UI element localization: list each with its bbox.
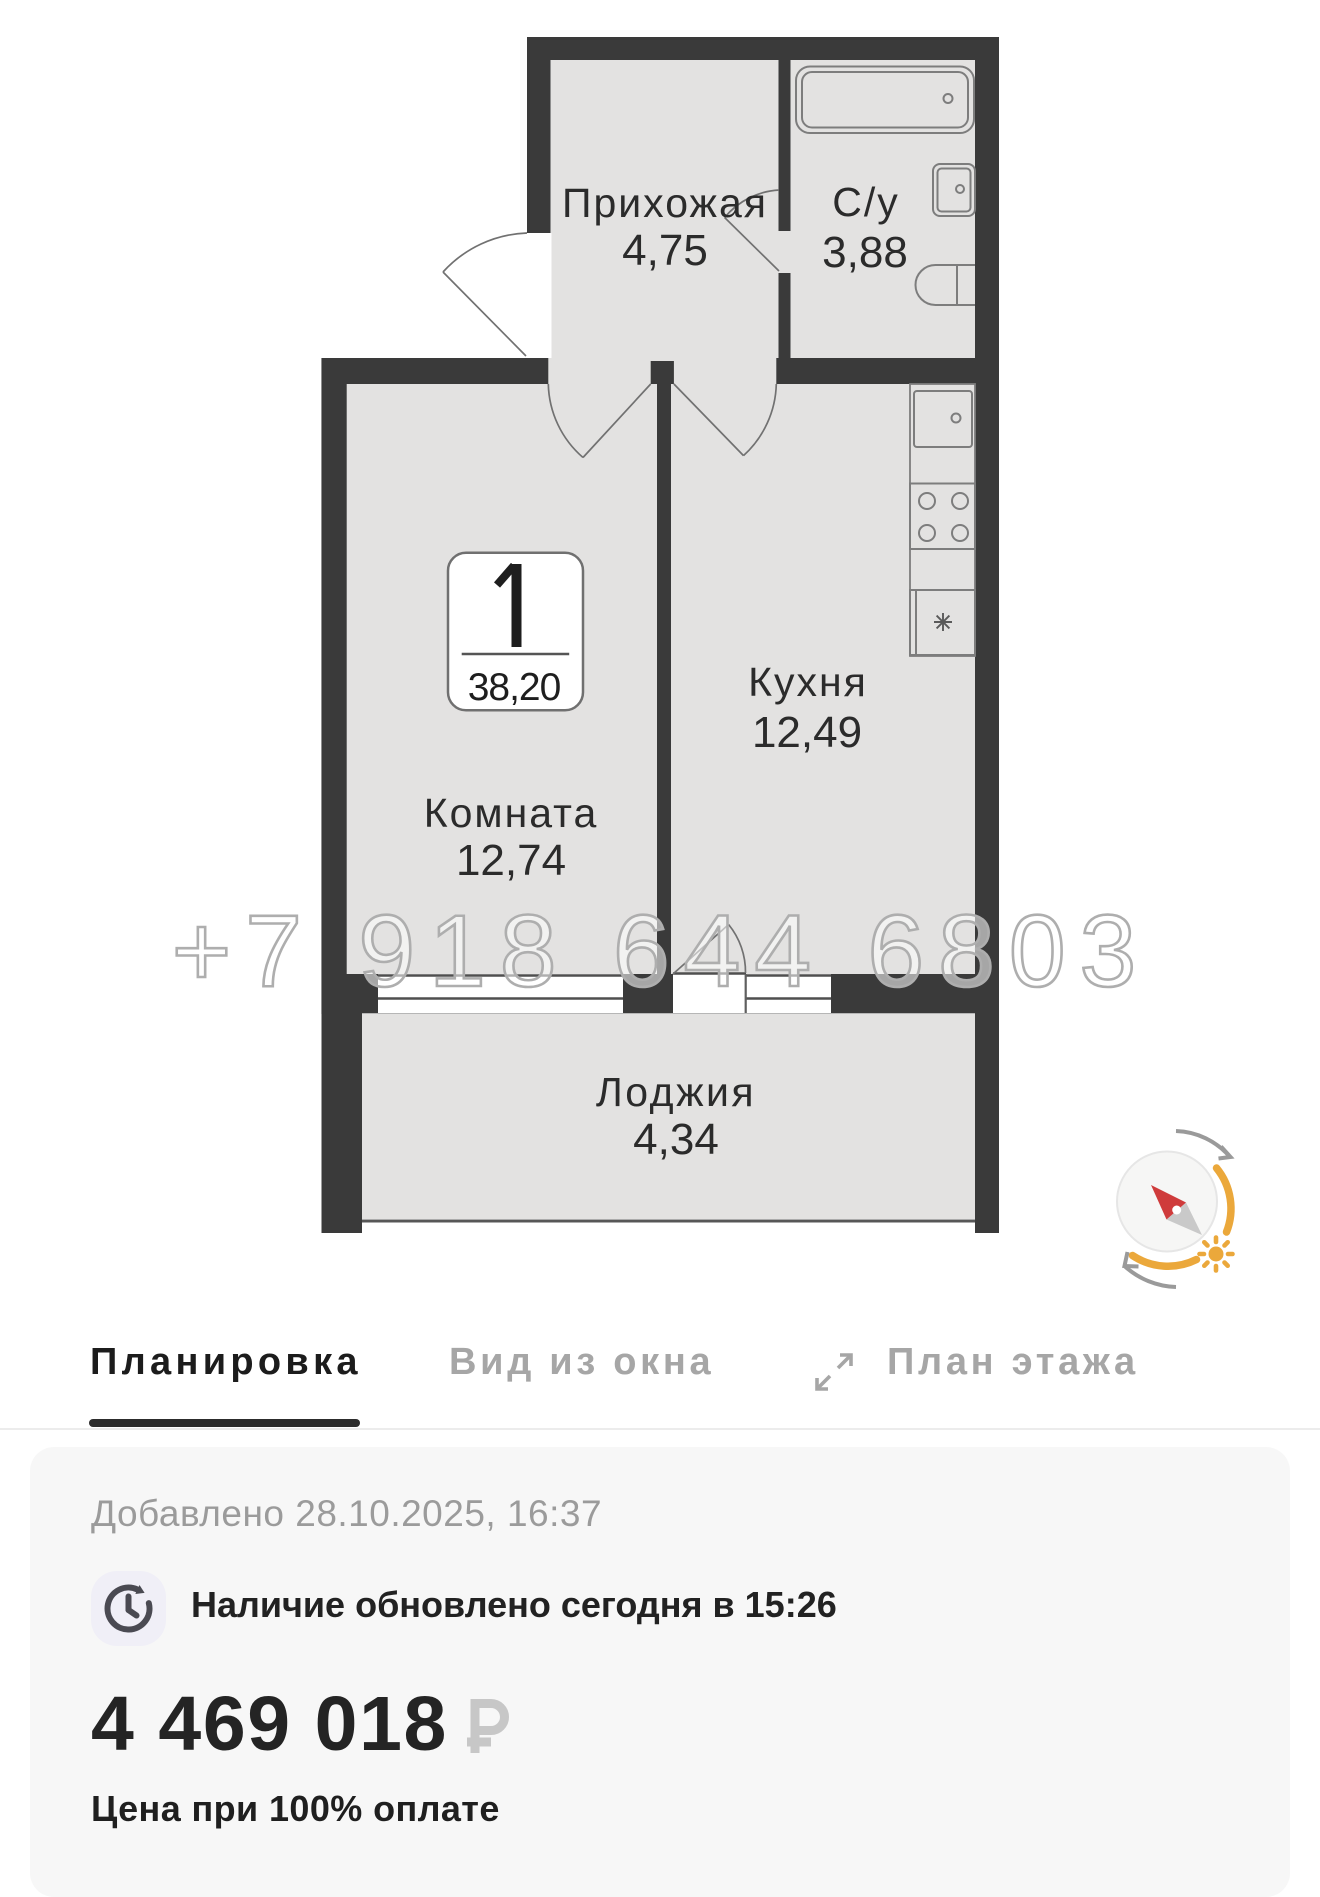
svg-text:Лоджия: Лоджия <box>596 1069 756 1115</box>
svg-text:+7 918 644 6803: +7 918 644 6803 <box>172 894 1151 1008</box>
svg-text:Прихожая: Прихожая <box>562 180 768 226</box>
svg-text:3,88: 3,88 <box>822 228 908 277</box>
svg-text:12,74: 12,74 <box>456 836 566 885</box>
svg-text:12,49: 12,49 <box>752 708 862 757</box>
svg-text:4,75: 4,75 <box>622 226 708 275</box>
svg-text:38,20: 38,20 <box>468 666 561 709</box>
svg-text:С/у: С/у <box>832 179 900 225</box>
svg-text:Комната: Комната <box>424 790 599 836</box>
svg-text:4,34: 4,34 <box>633 1115 719 1164</box>
svg-text:Кухня: Кухня <box>748 659 868 705</box>
